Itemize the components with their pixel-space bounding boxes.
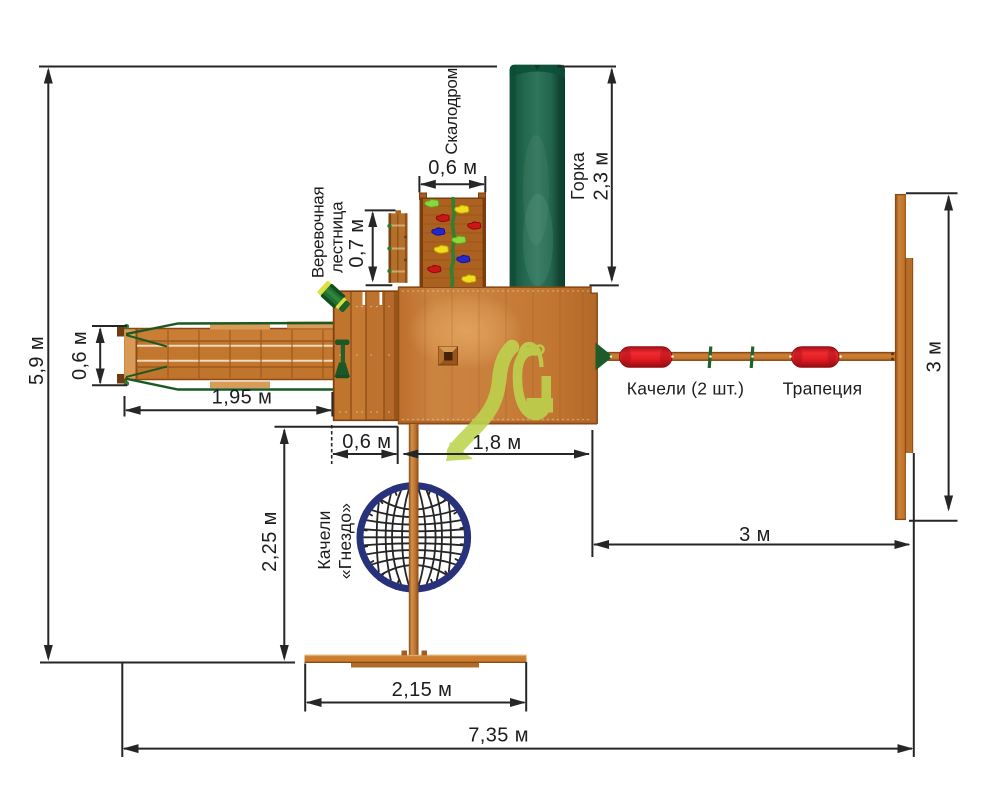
svg-text:0,7 м: 0,7 м xyxy=(346,219,368,268)
svg-text:7,35 м: 7,35 м xyxy=(468,725,529,747)
svg-text:0,6 м: 0,6 м xyxy=(428,157,477,179)
svg-text:Качели (2 шт.): Качели (2 шт.) xyxy=(627,379,744,399)
svg-text:Трапеция: Трапеция xyxy=(783,379,863,399)
svg-text:1,8 м: 1,8 м xyxy=(472,432,521,454)
svg-text:Скалодром: Скалодром xyxy=(442,68,461,155)
svg-text:0,6 м: 0,6 м xyxy=(69,331,91,380)
svg-text:3 м: 3 м xyxy=(924,341,946,373)
svg-text:0,6 м: 0,6 м xyxy=(342,431,391,453)
svg-text:лестница: лестница xyxy=(328,201,347,273)
svg-text:Веревочная: Веревочная xyxy=(309,187,328,279)
svg-text:2,25 м: 2,25 м xyxy=(259,511,281,572)
svg-text:1,95 м: 1,95 м xyxy=(212,387,273,409)
svg-text:2,15 м: 2,15 м xyxy=(392,679,453,701)
svg-text:Горка: Горка xyxy=(568,151,588,200)
svg-text:Качели: Качели xyxy=(314,510,334,569)
svg-text:3 м: 3 м xyxy=(739,524,771,546)
svg-text:2,3 м: 2,3 м xyxy=(591,151,613,200)
svg-text:«Гнездо»: «Гнездо» xyxy=(335,503,355,580)
svg-text:5,9 м: 5,9 м xyxy=(26,336,48,385)
